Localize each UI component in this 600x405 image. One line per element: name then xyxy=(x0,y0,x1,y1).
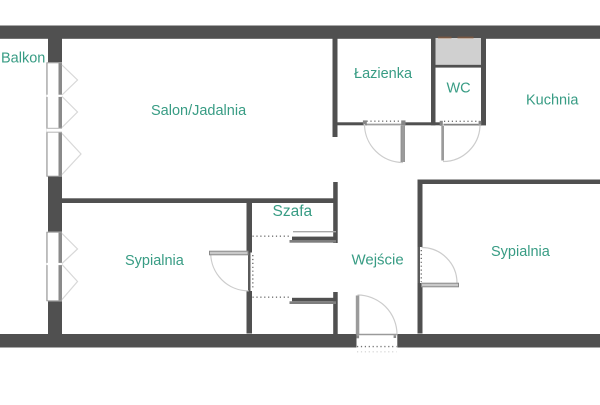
svg-text:Łazienka: Łazienka xyxy=(354,66,413,82)
svg-text:WC: WC xyxy=(447,81,471,97)
svg-text:Balkon: Balkon xyxy=(1,51,45,67)
svg-text:Wejście: Wejście xyxy=(352,252,404,269)
svg-text:Sypialnia: Sypialnia xyxy=(125,253,185,269)
svg-text:Kuchnia: Kuchnia xyxy=(526,93,579,109)
svg-text:Szafa: Szafa xyxy=(273,203,313,220)
svg-text:Salon/Jadalnia: Salon/Jadalnia xyxy=(151,103,247,119)
svg-text:Sypialnia: Sypialnia xyxy=(491,244,551,260)
